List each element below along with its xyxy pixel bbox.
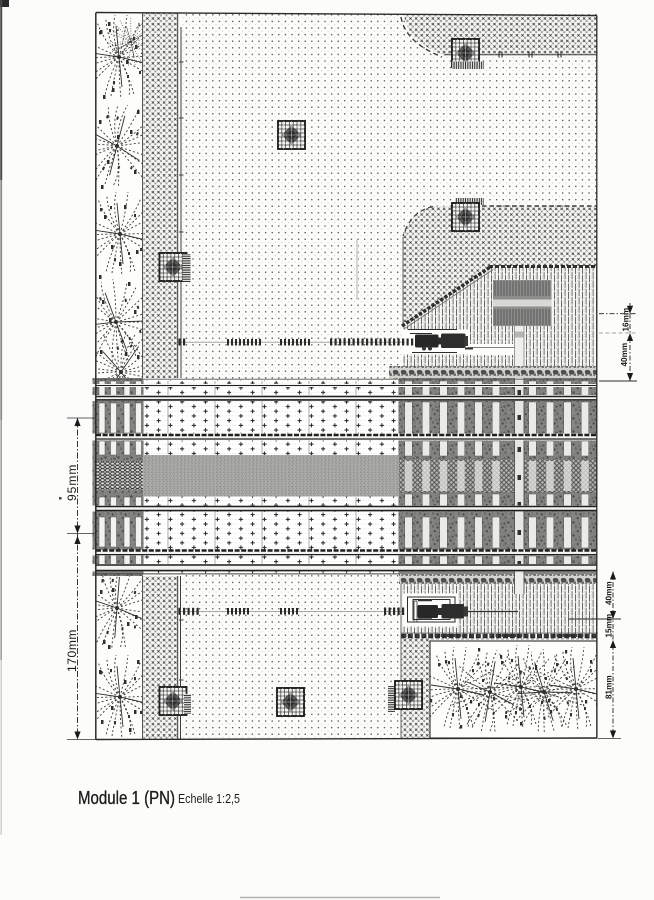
svg-text:95mm: 95mm xyxy=(65,464,79,501)
svg-text:16mm: 16mm xyxy=(622,308,631,332)
svg-text:40mm: 40mm xyxy=(620,343,629,367)
svg-text:81mm: 81mm xyxy=(605,675,614,699)
svg-text:Echelle 1:2,5: Echelle 1:2,5 xyxy=(178,791,240,806)
svg-text:Module 1 (PN): Module 1 (PN) xyxy=(78,787,175,808)
svg-text:15mm: 15mm xyxy=(605,614,614,638)
svg-text:40mm: 40mm xyxy=(605,581,614,605)
svg-text:170mm: 170mm xyxy=(65,629,79,672)
